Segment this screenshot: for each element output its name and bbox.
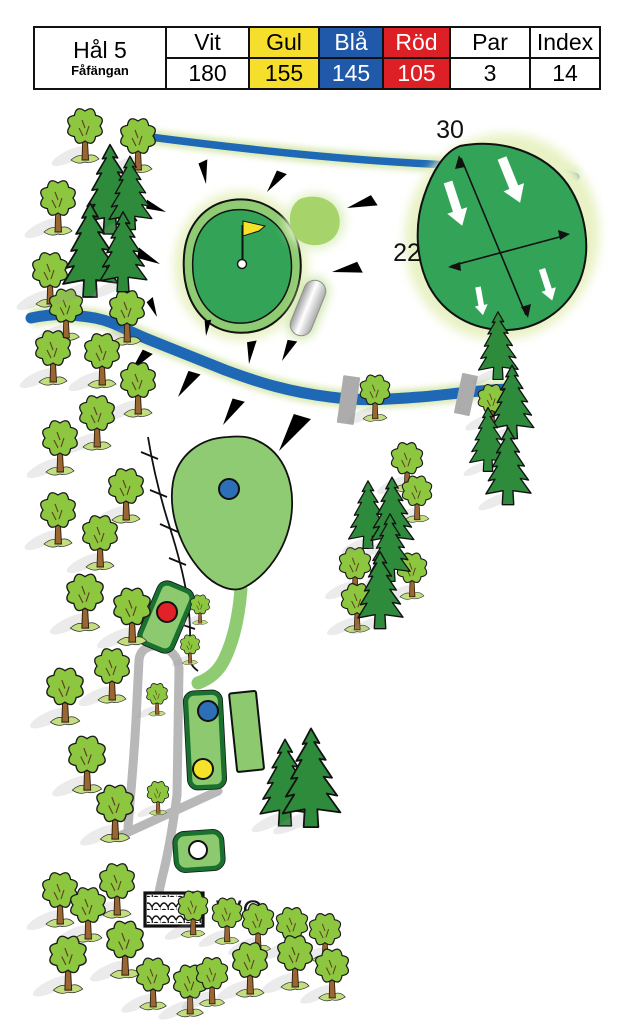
white-tee-marker xyxy=(189,841,207,859)
deciduous-tree-icon xyxy=(24,873,77,934)
extra-tee-pad xyxy=(229,691,264,772)
hole-number: Hål 5 xyxy=(73,39,127,62)
mound-wedge-icon xyxy=(264,168,287,195)
scorecard-table: Hål 5 Fåfängan Vit Gul Blå Röd Par Index… xyxy=(33,26,601,90)
deciduous-tree-icon xyxy=(17,331,70,392)
deciduous-tree-icon xyxy=(136,781,169,819)
deciduous-tree-icon xyxy=(50,736,106,800)
tee-white-distance: 180 xyxy=(165,59,248,88)
mound-wedge-icon xyxy=(219,396,245,429)
tee-blue-distance: 145 xyxy=(318,59,382,88)
red-tee-marker xyxy=(157,602,177,622)
index-col-label: Index xyxy=(529,28,599,59)
blue-tee-marker xyxy=(198,701,218,721)
deciduous-tree-icon xyxy=(24,421,77,482)
deciduous-tree-icon xyxy=(22,493,75,554)
blue-distance-dot xyxy=(219,479,239,499)
hole-cup xyxy=(238,260,247,269)
mound-wedge-icon xyxy=(146,297,161,318)
course-name: Fåfängan xyxy=(71,64,129,77)
green-depth-label: 30 xyxy=(436,116,464,144)
index-value: 14 xyxy=(529,59,599,88)
deciduous-tree-icon xyxy=(31,936,87,1000)
hole-title-cell: Hål 5 Fåfängan xyxy=(35,28,165,88)
deciduous-tree-icon xyxy=(64,516,117,577)
deciduous-tree-icon xyxy=(28,668,84,732)
mound-wedge-icon xyxy=(198,159,211,184)
green-width-label: 22 xyxy=(393,239,421,267)
tee-col-blue-label: Blå xyxy=(318,28,382,59)
rough-mound xyxy=(285,193,345,249)
par-col-label: Par xyxy=(449,28,529,59)
tee-yellow-distance: 155 xyxy=(248,59,318,88)
deciduous-tree-icon xyxy=(78,785,134,849)
tee-col-white-label: Vit xyxy=(165,28,248,59)
course-map: 30 22 xyxy=(0,0,629,1020)
deciduous-tree-icon xyxy=(49,109,102,170)
mound-wedge-icon xyxy=(278,338,297,364)
tee-col-yellow-label: Gul xyxy=(248,28,318,59)
tee-col-red-label: Röd xyxy=(382,28,449,59)
deciduous-tree-icon xyxy=(48,574,104,638)
deciduous-tree-icon xyxy=(66,334,119,395)
mound-wedge-icon xyxy=(346,194,378,214)
tee-red-distance: 105 xyxy=(382,59,449,88)
yellow-tee-marker xyxy=(193,759,213,779)
mound-wedge-icon xyxy=(331,261,363,279)
deciduous-tree-icon xyxy=(76,649,129,710)
mound-wedge-icon xyxy=(174,368,201,401)
mound-wedge-icon xyxy=(245,340,257,365)
deciduous-tree-icon xyxy=(88,921,144,985)
deciduous-tree-icon xyxy=(22,181,75,242)
par-value: 3 xyxy=(449,59,529,88)
mound-wedge-icon xyxy=(273,410,311,456)
fairway-teardrop xyxy=(172,436,292,589)
